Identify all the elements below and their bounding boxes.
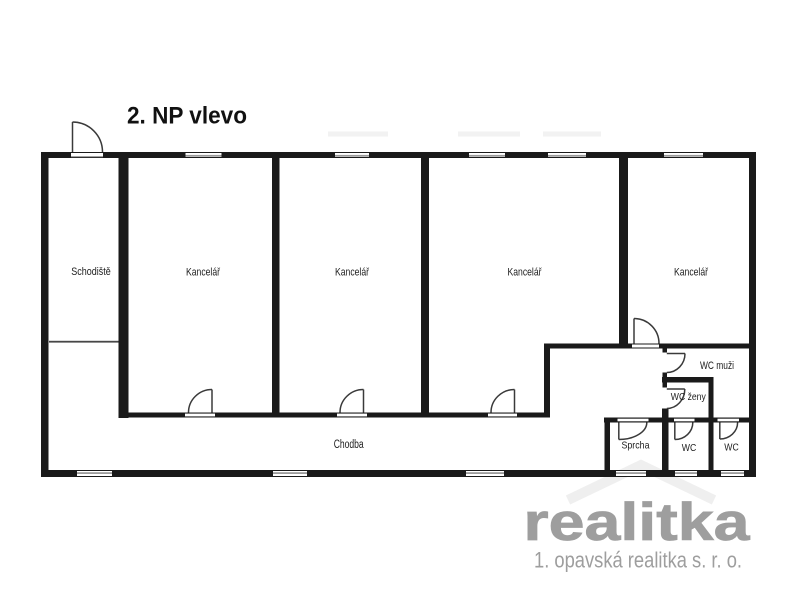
svg-text:WC: WC (724, 442, 739, 453)
svg-text:Chodba: Chodba (334, 439, 364, 451)
svg-text:Sprcha: Sprcha (622, 439, 650, 451)
svg-text:Kancelář: Kancelář (674, 267, 708, 279)
svg-text:Kancelář: Kancelář (335, 267, 369, 279)
svg-text:Kancelář: Kancelář (508, 267, 542, 279)
svg-text:Schodiště: Schodiště (71, 266, 111, 278)
svg-text:WC ženy: WC ženy (671, 391, 707, 403)
svg-text:1. opavská realitka s. r. o.: 1. opavská realitka s. r. o. (534, 548, 742, 573)
svg-text:WC muži: WC muži (700, 360, 734, 372)
svg-text:Kancelář: Kancelář (186, 267, 220, 279)
svg-text:2. NP vlevo: 2. NP vlevo (127, 103, 247, 130)
svg-text:realitka: realitka (524, 493, 751, 552)
svg-text:WC: WC (682, 443, 697, 454)
